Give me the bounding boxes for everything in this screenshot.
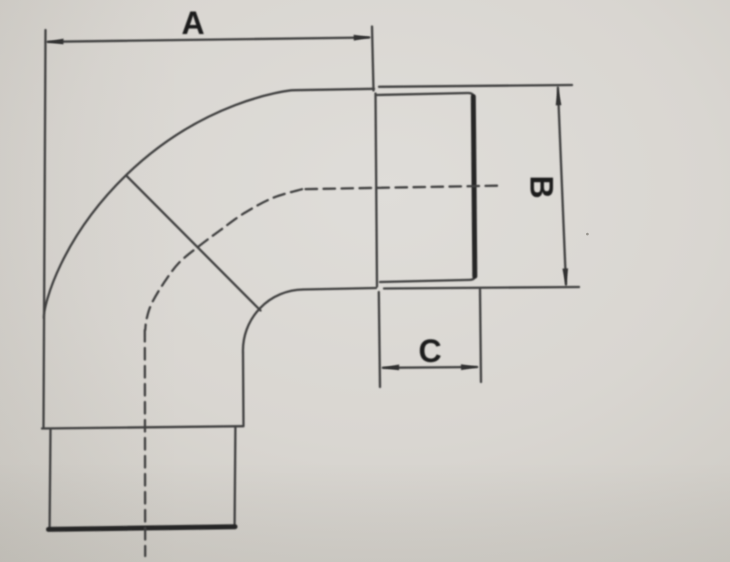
- svg-text:B: B: [524, 175, 560, 198]
- svg-text:C: C: [418, 333, 441, 369]
- svg-text:A: A: [181, 5, 204, 41]
